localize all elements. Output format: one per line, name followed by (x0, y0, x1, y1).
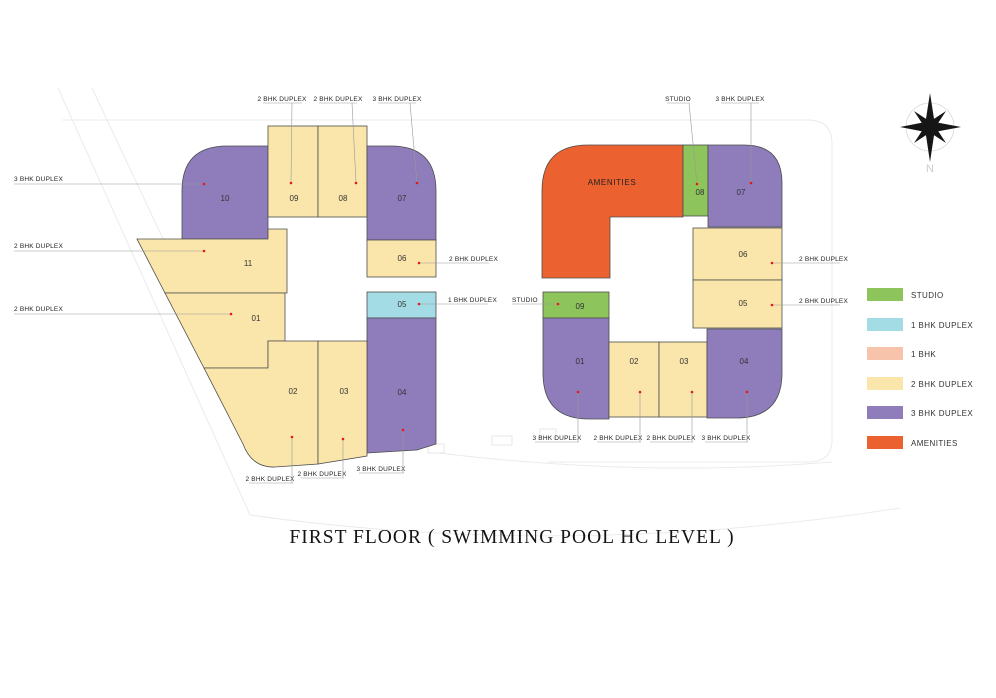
leader-dot (230, 313, 233, 316)
unit-left-10 (182, 146, 268, 239)
right-building: AMENITIES 08 07 06 05 09 01 02 03 04 (542, 145, 782, 419)
unit-right-08 (683, 145, 708, 216)
left-building: 10 09 08 07 06 05 04 03 02 01 11 (137, 126, 436, 467)
leader-dot (418, 303, 421, 306)
unit-right-amenities (542, 145, 683, 278)
leader-dot (771, 262, 774, 265)
annotation-label: 3 BHK DUPLEX (715, 96, 764, 103)
floor-plan-page: 10 09 08 07 06 05 04 03 02 01 11 AMENITI… (0, 0, 996, 698)
annotation-label: 2 BHK DUPLEX (14, 306, 63, 313)
unit-left-11-number: 11 (244, 259, 253, 268)
compass-north-label: N (926, 163, 934, 175)
annotation-label: 2 BHK DUPLEX (449, 256, 498, 263)
leader-dot (577, 391, 580, 394)
leader-dot (750, 182, 753, 185)
amenities-label: AMENITIES (588, 178, 637, 187)
road-curve (430, 452, 832, 468)
leader-dot (203, 250, 206, 253)
unit-right-08-number: 08 (696, 188, 705, 197)
legend-label-studio: STUDIO (911, 291, 944, 300)
unit-right-03-number: 03 (680, 357, 689, 366)
unit-right-05-number: 05 (739, 299, 748, 308)
unit-right-09-number: 09 (576, 302, 585, 311)
unit-right-05 (693, 280, 782, 328)
leader-dot (342, 438, 345, 441)
compass-rose-icon: N (900, 93, 961, 175)
leader-dot (416, 182, 419, 185)
legend-swatch-1bhk (867, 347, 903, 360)
unit-left-02-number: 02 (289, 387, 298, 396)
unit-left-01 (165, 293, 285, 368)
unit-right-02 (609, 342, 659, 417)
leader-dot (402, 429, 405, 432)
unit-left-06-number: 06 (398, 254, 407, 263)
floor-plan-svg: 10 09 08 07 06 05 04 03 02 01 11 AMENITI… (0, 0, 996, 698)
annotation-label: 2 BHK DUPLEX (313, 96, 362, 103)
legend-swatch-3bhk-duplex (867, 406, 903, 419)
legend-swatch-amenities (867, 436, 903, 449)
unit-left-11 (137, 229, 287, 293)
legend-swatch-2bhk-duplex (867, 377, 903, 390)
leader-dot (355, 182, 358, 185)
annotation-label: 3 BHK DUPLEX (532, 435, 581, 442)
compass-star-main (900, 93, 961, 162)
unit-left-07-number: 07 (398, 194, 407, 203)
leader-dot (291, 436, 294, 439)
legend-label-3bhk-duplex: 3 BHK DUPLEX (911, 409, 973, 418)
unit-right-01 (543, 318, 609, 419)
legend-label-amenities: AMENITIES (911, 439, 958, 448)
unit-left-05-number: 05 (398, 300, 407, 309)
unit-left-03 (318, 341, 367, 464)
annotation-label: STUDIO (512, 297, 538, 304)
annotation-label: 2 BHK DUPLEX (245, 476, 294, 483)
unit-left-04-number: 04 (398, 388, 407, 397)
leader-dot (746, 391, 749, 394)
unit-left-03-number: 03 (340, 387, 349, 396)
unit-left-08 (318, 126, 367, 217)
unit-left-01-number: 01 (252, 314, 261, 323)
unit-right-04 (707, 329, 782, 418)
leader-dot (696, 183, 699, 186)
annotation-label: 2 BHK DUPLEX (593, 435, 642, 442)
unit-left-08-number: 08 (339, 194, 348, 203)
unit-left-10-number: 10 (221, 194, 230, 203)
annotation-label: STUDIO (665, 96, 691, 103)
site-feature-2 (492, 436, 512, 445)
annotation-label: 2 BHK DUPLEX (799, 298, 848, 305)
unit-left-09 (268, 126, 318, 217)
leader-dot (691, 391, 694, 394)
annotation-label: 2 BHK DUPLEX (257, 96, 306, 103)
leader-dot (771, 304, 774, 307)
legend-label-2bhk-duplex: 2 BHK DUPLEX (911, 380, 973, 389)
leader-dot (639, 391, 642, 394)
leader-dot (418, 262, 421, 265)
leader-dot (290, 182, 293, 185)
legend: STUDIO 1 BHK DUPLEX 1 BHK 2 BHK DUPLEX 3… (867, 288, 973, 449)
unit-left-07 (367, 146, 436, 240)
annotation-label: 2 BHK DUPLEX (799, 256, 848, 263)
annotation-label: 3 BHK DUPLEX (14, 176, 63, 183)
annotation-label: 2 BHK DUPLEX (14, 243, 63, 250)
unit-left-04 (367, 318, 436, 453)
leader-dot (203, 183, 206, 186)
unit-right-06-number: 06 (739, 250, 748, 259)
annotation-label: 2 BHK DUPLEX (297, 471, 346, 478)
unit-right-07 (708, 145, 782, 227)
annotation-label: 3 BHK DUPLEX (356, 466, 405, 473)
legend-label-1bhk: 1 BHK (911, 350, 936, 359)
legend-label-1bhk-duplex: 1 BHK DUPLEX (911, 321, 973, 330)
legend-swatch-1bhk-duplex (867, 318, 903, 331)
unit-right-01-number: 01 (576, 357, 585, 366)
annotation-label: 3 BHK DUPLEX (372, 96, 421, 103)
unit-right-07-number: 07 (737, 188, 746, 197)
annotation-label: 2 BHK DUPLEX (646, 435, 695, 442)
unit-right-06 (693, 228, 782, 280)
unit-right-04-number: 04 (740, 357, 749, 366)
annotation-label: 1 BHK DUPLEX (448, 297, 497, 304)
page-title: FIRST FLOOR ( SWIMMING POOL HC LEVEL ) (289, 527, 734, 548)
leader-dot (557, 303, 560, 306)
unit-left-09-number: 09 (290, 194, 299, 203)
unit-right-02-number: 02 (630, 357, 639, 366)
annotation-label: 3 BHK DUPLEX (701, 435, 750, 442)
unit-right-03 (659, 342, 707, 417)
legend-swatch-studio (867, 288, 903, 301)
